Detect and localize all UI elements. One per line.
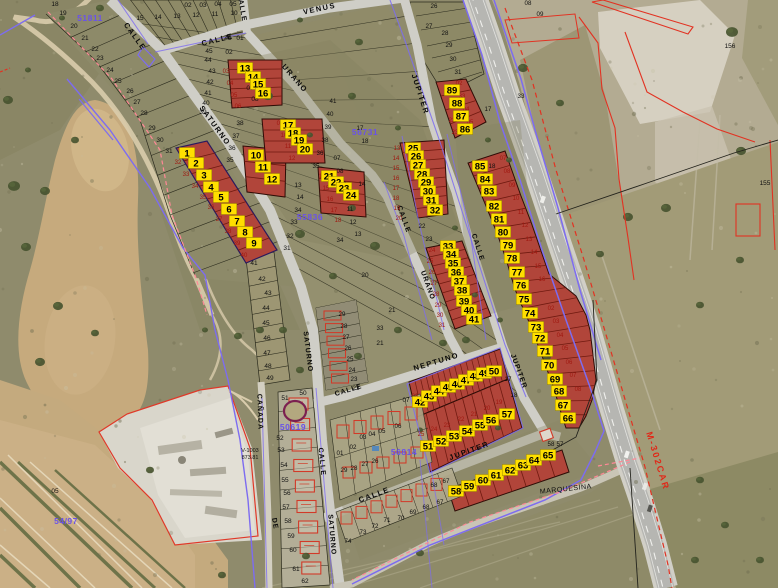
svg-text:43: 43 [264,290,272,297]
svg-text:72: 72 [535,333,546,344]
svg-text:31: 31 [165,148,173,155]
svg-text:31: 31 [439,323,446,329]
svg-text:19: 19 [394,206,401,212]
svg-text:60: 60 [478,475,489,486]
svg-text:11: 11 [518,210,525,216]
svg-text:32: 32 [175,160,182,166]
svg-text:13: 13 [526,237,533,243]
svg-text:22: 22 [353,385,360,392]
svg-text:58: 58 [548,441,555,448]
svg-text:02: 02 [225,49,233,56]
svg-text:16: 16 [327,197,334,203]
svg-text:26: 26 [431,3,438,10]
svg-text:41: 41 [469,314,480,325]
svg-text:31: 31 [283,245,291,252]
svg-text:6: 6 [226,204,231,215]
svg-text:38: 38 [225,229,232,235]
svg-text:53: 53 [277,447,285,454]
svg-text:52: 52 [436,436,447,447]
svg-text:36: 36 [208,205,215,211]
svg-text:26: 26 [345,345,352,352]
svg-text:20: 20 [70,23,78,30]
svg-text:50: 50 [489,366,500,377]
svg-text:06: 06 [235,104,242,110]
svg-text:19: 19 [496,400,503,406]
svg-text:873.81: 873.81 [242,455,259,461]
svg-text:56: 56 [486,415,497,426]
svg-text:57: 57 [557,441,564,448]
svg-text:79: 79 [503,240,514,251]
svg-text:05: 05 [379,428,386,435]
svg-text:08: 08 [504,169,511,175]
svg-text:08: 08 [575,387,582,393]
svg-text:64: 64 [529,455,540,466]
svg-text:21: 21 [376,340,384,347]
svg-text:28: 28 [140,110,148,117]
svg-text:36: 36 [317,150,324,157]
svg-text:33: 33 [518,93,525,100]
svg-text:25: 25 [347,356,354,363]
svg-text:44: 44 [262,305,270,312]
svg-text:24: 24 [346,190,357,201]
svg-text:06: 06 [395,423,402,430]
svg-text:03: 03 [553,319,560,325]
svg-text:68: 68 [554,386,565,397]
svg-text:37: 37 [232,133,240,140]
svg-text:03: 03 [223,69,230,75]
svg-text:41: 41 [330,98,337,105]
svg-text:21: 21 [81,35,89,42]
svg-text:62: 62 [505,465,516,476]
svg-text:18: 18 [393,196,400,202]
svg-text:10: 10 [513,196,520,202]
svg-text:02: 02 [350,444,357,451]
svg-text:03: 03 [199,2,207,9]
svg-text:48: 48 [264,363,272,370]
svg-text:13: 13 [394,146,401,152]
svg-text:27: 27 [362,461,369,468]
svg-text:31: 31 [455,69,462,76]
svg-text:V-1003: V-1003 [241,448,258,454]
svg-text:23: 23 [426,236,433,243]
svg-text:47: 47 [263,350,271,357]
svg-text:42: 42 [206,79,214,86]
svg-text:70: 70 [398,515,405,522]
svg-text:11: 11 [285,144,292,150]
svg-text:28: 28 [442,30,449,37]
svg-text:03: 03 [360,434,367,441]
svg-text:11: 11 [347,206,354,213]
svg-text:59: 59 [287,533,295,540]
svg-text:53: 53 [449,431,460,442]
svg-text:43: 43 [208,68,216,75]
svg-text:45: 45 [262,320,270,327]
svg-text:58: 58 [451,486,462,497]
svg-text:62: 62 [301,578,309,585]
svg-text:32: 32 [430,205,441,216]
svg-text:19: 19 [59,10,67,17]
svg-text:65: 65 [543,450,554,461]
svg-text:01: 01 [337,450,344,457]
svg-text:28: 28 [351,465,358,472]
svg-text:23: 23 [444,423,451,429]
svg-text:56814: 56814 [391,447,417,457]
svg-text:68: 68 [423,504,430,511]
svg-text:57: 57 [282,504,290,511]
svg-text:30: 30 [156,137,164,144]
svg-text:33: 33 [290,219,298,226]
svg-text:67: 67 [558,400,569,411]
svg-text:17: 17 [331,208,338,214]
svg-text:09: 09 [537,11,544,18]
svg-text:29: 29 [435,303,442,309]
svg-text:07: 07 [334,155,341,162]
svg-text:58: 58 [284,518,292,525]
svg-text:54/97: 54/97 [54,516,78,526]
svg-text:25: 25 [114,78,122,85]
svg-text:28: 28 [341,323,348,330]
svg-text:05: 05 [51,488,59,495]
svg-text:16: 16 [539,277,546,283]
svg-text:17: 17 [393,186,400,192]
svg-text:08: 08 [525,0,532,7]
svg-text:23: 23 [351,376,358,383]
svg-text:29: 29 [339,311,346,318]
svg-text:61: 61 [292,566,300,573]
svg-text:24: 24 [349,367,356,374]
svg-text:20: 20 [396,216,403,222]
svg-text:73: 73 [531,322,542,333]
svg-text:05: 05 [229,1,237,8]
svg-text:41: 41 [204,90,212,97]
svg-text:24: 24 [431,427,438,433]
svg-text:75: 75 [519,294,530,305]
svg-text:39: 39 [199,109,207,116]
svg-text:46: 46 [224,35,232,42]
svg-text:09: 09 [509,183,516,189]
svg-text:78: 78 [507,253,518,264]
svg-text:38: 38 [322,137,329,144]
svg-text:25: 25 [418,432,425,438]
svg-text:22: 22 [419,223,426,230]
svg-text:54: 54 [462,426,473,437]
svg-text:40: 40 [241,253,248,259]
svg-text:20: 20 [361,272,369,279]
svg-text:88: 88 [452,98,463,109]
svg-text:54: 54 [280,462,288,469]
svg-text:12: 12 [192,12,200,19]
svg-text:56: 56 [283,490,291,497]
svg-text:24: 24 [429,248,436,254]
svg-text:22: 22 [91,46,99,53]
svg-text:18: 18 [51,1,59,8]
svg-text:15: 15 [136,15,144,22]
svg-text:80: 80 [498,227,509,238]
svg-text:89: 89 [447,85,458,96]
svg-text:12: 12 [350,219,357,226]
svg-text:46: 46 [263,335,271,342]
svg-text:29: 29 [148,125,156,132]
svg-text:84: 84 [480,174,491,185]
svg-text:3: 3 [201,170,206,181]
svg-text:17: 17 [485,106,492,113]
svg-text:2: 2 [193,158,198,169]
svg-text:52: 52 [276,435,284,442]
svg-text:26: 26 [372,458,379,465]
svg-text:23: 23 [96,55,104,62]
svg-text:26: 26 [429,270,436,276]
svg-text:07: 07 [500,156,507,162]
svg-text:14: 14 [296,194,304,201]
svg-text:32: 32 [286,233,294,240]
svg-text:12: 12 [522,223,529,229]
svg-text:51: 51 [423,441,434,452]
svg-text:73: 73 [360,529,367,536]
svg-text:14: 14 [393,156,400,162]
svg-text:34: 34 [294,207,302,214]
svg-text:21: 21 [389,307,396,314]
svg-text:27: 27 [133,99,141,106]
svg-text:06: 06 [566,360,573,366]
svg-text:10: 10 [251,150,262,161]
svg-text:24: 24 [106,67,114,74]
svg-text:50: 50 [299,390,307,397]
svg-text:37: 37 [216,217,223,223]
svg-text:69: 69 [410,509,417,516]
svg-text:26: 26 [126,88,134,95]
svg-text:30: 30 [450,56,457,63]
svg-text:51811: 51811 [77,13,103,23]
svg-text:05: 05 [231,93,238,99]
svg-text:38: 38 [236,120,244,127]
svg-text:70: 70 [544,360,555,371]
svg-text:50619: 50619 [280,422,306,432]
svg-text:74: 74 [345,538,352,545]
svg-text:35: 35 [313,163,320,170]
svg-text:22: 22 [458,417,465,423]
svg-text:04: 04 [557,333,564,339]
svg-text:5: 5 [218,192,224,203]
svg-text:12: 12 [267,174,278,185]
svg-text:74: 74 [525,308,536,319]
svg-text:33: 33 [377,325,384,332]
svg-text:71: 71 [384,517,391,524]
svg-text:18: 18 [335,218,342,224]
svg-text:07: 07 [570,373,577,379]
svg-text:30: 30 [437,313,444,319]
svg-text:16: 16 [258,88,269,99]
svg-text:86: 86 [460,124,471,135]
svg-text:01: 01 [236,35,244,42]
svg-text:11: 11 [258,162,269,173]
svg-text:20: 20 [484,406,491,412]
svg-text:25: 25 [427,259,434,265]
svg-text:34: 34 [192,184,199,190]
svg-text:57: 57 [502,409,513,420]
svg-text:28: 28 [433,292,440,298]
svg-text:08: 08 [337,168,344,175]
svg-text:76: 76 [516,280,527,291]
svg-text:35: 35 [200,195,207,201]
svg-text:14: 14 [359,181,366,188]
svg-text:27: 27 [431,281,438,287]
svg-text:11: 11 [212,11,219,18]
svg-text:42: 42 [258,276,266,283]
svg-text:13: 13 [294,182,302,189]
svg-text:18: 18 [511,392,518,399]
svg-text:45: 45 [205,48,213,55]
svg-text:61: 61 [491,470,502,481]
svg-text:39: 39 [234,241,241,247]
svg-text:49: 49 [266,375,274,382]
svg-text:87: 87 [456,111,467,122]
svg-text:81: 81 [494,214,505,225]
svg-text:38: 38 [457,285,468,296]
svg-text:34: 34 [337,237,344,244]
svg-text:36: 36 [228,145,236,152]
svg-text:20: 20 [300,144,311,155]
svg-text:67: 67 [443,478,450,485]
svg-text:18: 18 [362,138,369,145]
svg-text:39: 39 [325,124,332,131]
svg-text:14: 14 [531,250,538,256]
svg-text:155: 155 [760,180,771,187]
svg-text:18: 18 [489,163,496,170]
svg-text:15: 15 [535,264,542,270]
svg-text:82: 82 [489,201,500,212]
svg-text:29: 29 [446,42,453,49]
svg-text:04: 04 [369,431,376,438]
svg-text:21: 21 [471,412,478,418]
svg-text:156: 156 [725,43,736,50]
svg-text:9: 9 [251,238,256,249]
svg-text:15: 15 [393,166,400,172]
svg-text:33: 33 [183,172,190,178]
svg-text:59: 59 [464,481,475,492]
svg-text:27: 27 [426,23,433,30]
svg-text:14: 14 [154,14,162,21]
svg-text:27: 27 [343,334,350,341]
svg-text:40: 40 [327,111,334,118]
svg-text:12: 12 [289,156,296,162]
svg-text:41: 41 [250,260,258,267]
svg-text:68: 68 [431,482,438,489]
svg-text:77: 77 [512,267,523,278]
svg-text:05: 05 [562,346,569,352]
svg-text:02: 02 [548,306,555,312]
svg-text:72: 72 [372,523,379,530]
svg-text:69: 69 [550,374,561,385]
svg-text:67: 67 [437,499,444,506]
svg-text:83: 83 [484,186,495,197]
svg-text:51: 51 [281,395,289,402]
svg-text:44: 44 [204,57,212,64]
svg-text:17: 17 [505,376,512,383]
svg-text:17: 17 [357,125,364,132]
svg-text:8: 8 [242,227,247,238]
svg-text:07: 07 [403,397,410,404]
svg-text:71: 71 [540,346,551,357]
svg-text:85: 85 [475,161,486,172]
svg-text:02: 02 [184,2,192,9]
svg-text:40: 40 [202,100,210,107]
svg-text:55: 55 [281,477,289,484]
svg-text:7: 7 [234,216,239,227]
svg-text:13: 13 [355,231,362,238]
svg-text:35: 35 [226,157,234,164]
svg-text:66: 66 [563,413,574,424]
svg-text:16: 16 [393,176,400,182]
svg-text:29: 29 [341,467,348,474]
svg-text:60: 60 [289,547,297,554]
svg-text:04: 04 [227,81,234,87]
svg-text:13: 13 [173,13,181,20]
svg-text:10: 10 [230,10,238,17]
svg-text:04: 04 [214,1,222,8]
